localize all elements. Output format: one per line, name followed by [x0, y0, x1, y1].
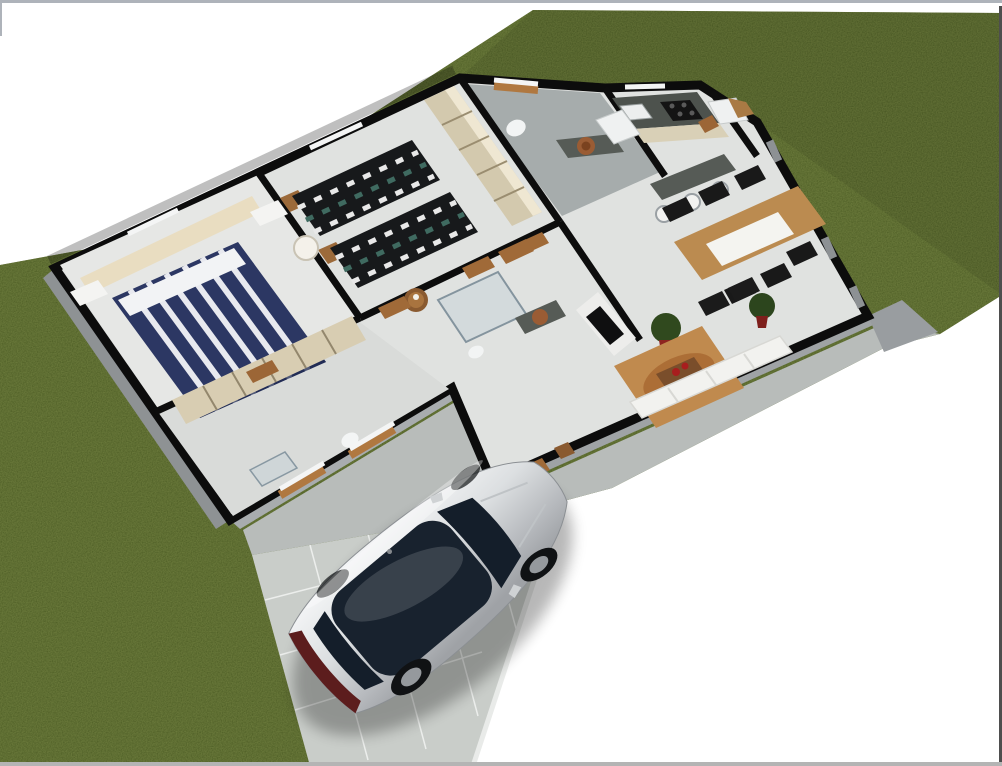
bedside-lamp: [294, 236, 318, 260]
border-top: [0, 0, 1002, 3]
plant-pot-2: [756, 316, 768, 328]
potted-plant-2: [749, 293, 775, 319]
scene-canvas: [0, 0, 1002, 766]
hall-table-lamp: [413, 294, 419, 300]
border-bottom: [0, 762, 1002, 766]
kitchen-window: [625, 86, 665, 87]
sink-bowl: [582, 142, 591, 151]
bath-window-sill: [494, 86, 538, 90]
border-left-sliver: [0, 0, 2, 36]
sink-basin-2: [532, 309, 548, 325]
floorplan-render: [0, 0, 1002, 766]
